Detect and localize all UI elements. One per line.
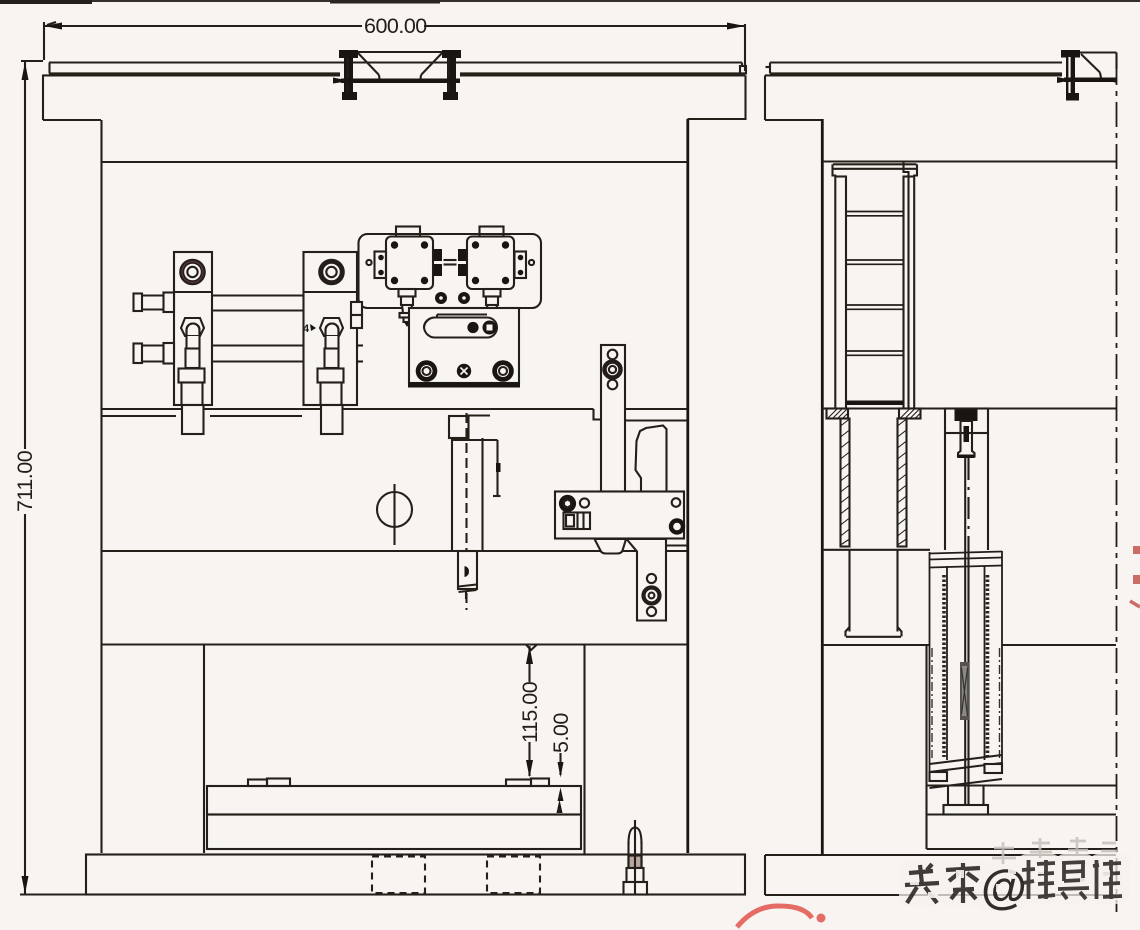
svg-text:5.00: 5.00	[549, 713, 573, 753]
svg-text:115.00: 115.00	[518, 681, 542, 743]
svg-text:711.00: 711.00	[13, 450, 37, 512]
svg-text:4: 4	[303, 323, 310, 335]
svg-text:600.00: 600.00	[364, 14, 427, 38]
